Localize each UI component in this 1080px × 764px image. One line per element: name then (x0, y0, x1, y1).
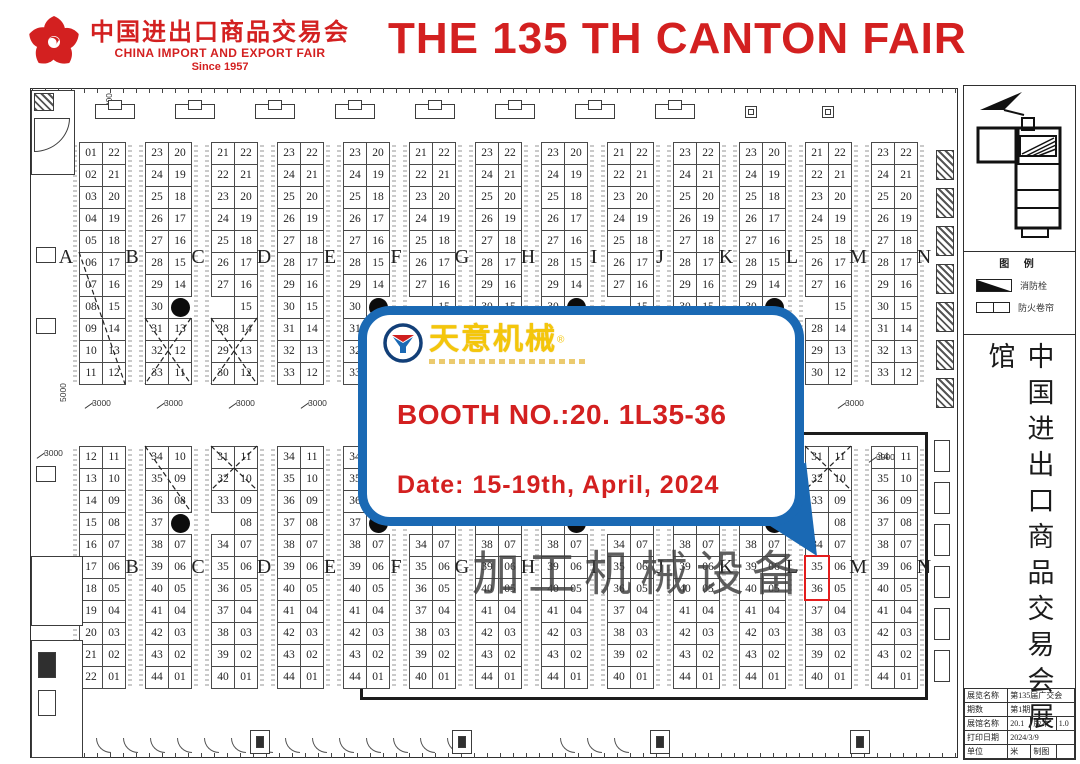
booth-cell-bottom-44: 44 (673, 666, 697, 689)
booth-cell-top-20: 20 (828, 186, 852, 209)
dimension-label: 3000 (92, 398, 111, 408)
booth-cell-bottom-40: 40 (277, 578, 301, 601)
booth-cell-bottom-04: 04 (432, 600, 456, 623)
booth-cell-top-19: 19 (366, 164, 390, 187)
booth-cell-bottom-05: 05 (102, 578, 126, 601)
booth-cell-top-16: 16 (696, 274, 720, 297)
booth-cell-top-08: 08 (79, 296, 103, 319)
booth-cell-bottom-08: 08 (828, 512, 852, 535)
pillar-dot (171, 298, 190, 317)
exhibitor-logo: 天意机械® (383, 323, 589, 368)
booth-cell-top-30: 30 (145, 296, 169, 319)
booth-cell-bottom-36: 36 (409, 578, 433, 601)
booth-cell-top-24: 24 (475, 164, 499, 187)
hall-letter-I-top: I (585, 246, 603, 268)
booth-cell-top-24: 24 (541, 164, 565, 187)
booth-cell-bottom-02: 02 (564, 644, 588, 667)
booth-cell-top-27: 27 (145, 230, 169, 253)
booth-cell-top-13: 13 (102, 340, 126, 363)
booth-cell-bottom-35: 35 (277, 468, 301, 491)
pillar-dot (171, 514, 190, 533)
booth-cell-top-32: 32 (145, 340, 169, 363)
booth-cell-top-24: 24 (277, 164, 301, 187)
booth-cell-top-32: 32 (277, 340, 301, 363)
booth-cell-top-22: 22 (894, 142, 918, 165)
booth-cell-top-26: 26 (607, 252, 631, 275)
booth-cell-top-20: 20 (234, 186, 258, 209)
booth-cell-bottom-38: 38 (211, 622, 235, 645)
info-table-cell: 版本 (1031, 717, 1056, 731)
door-swing-arc (420, 738, 435, 753)
booth-cell-top-19: 19 (630, 208, 654, 231)
booth-cell-bottom-32: 32 (805, 468, 829, 491)
booth-cell-top-12: 12 (168, 340, 192, 363)
booth-cell-bottom-44: 44 (871, 666, 895, 689)
service-room (934, 650, 950, 682)
booth-cell-bottom-39: 39 (409, 644, 433, 667)
booth-cell-bottom-08: 08 (102, 512, 126, 535)
booth-cell-top-26: 26 (211, 252, 235, 275)
fire-shutter-icon (976, 302, 1010, 313)
booth-cell-top-33: 33 (871, 362, 895, 385)
info-table-cell: 制图 (1031, 745, 1056, 759)
freight-lift (38, 652, 56, 678)
booth-cell-top-15: 15 (234, 296, 258, 319)
booth-cell-top-18: 18 (366, 186, 390, 209)
booth-cell-bottom-03: 03 (630, 622, 654, 645)
booth-cell-top-22: 22 (102, 142, 126, 165)
booth-cell-top-24: 24 (211, 208, 235, 231)
booth-cell-bottom-39: 39 (343, 556, 367, 579)
booth-cell-bottom-37: 37 (211, 600, 235, 623)
booth-cell-top-16: 16 (894, 274, 918, 297)
booth-cell-bottom-04: 04 (366, 600, 390, 623)
booth-cell-top-29: 29 (145, 274, 169, 297)
wall-pillar (458, 736, 466, 748)
booth-cell-top-21: 21 (696, 164, 720, 187)
booth-cell-bottom-01: 01 (564, 666, 588, 689)
booth-cell-top-02: 02 (79, 164, 103, 187)
hall-letter-G-bottom: G (453, 556, 471, 578)
booth-cell-top-20: 20 (564, 142, 588, 165)
dimension-label: 3000 (44, 448, 63, 458)
booth-cell-top-22: 22 (828, 142, 852, 165)
booth-cell-bottom-11: 11 (300, 446, 324, 469)
booth-cell-bottom-35: 35 (409, 556, 433, 579)
exhibitor-tagline-strip (429, 359, 589, 364)
booth-cell-top-29: 29 (805, 340, 829, 363)
booth-cell-bottom-02: 02 (828, 644, 852, 667)
booth-cell-top-14: 14 (234, 318, 258, 341)
booth-cell-bottom-44: 44 (145, 666, 169, 689)
entrance-vestibule (428, 100, 442, 110)
booth-cell-top-13: 13 (168, 318, 192, 341)
booth-cell-bottom-01: 01 (762, 666, 786, 689)
booth-cell-top-25: 25 (871, 186, 895, 209)
booth-cell-top-22: 22 (234, 142, 258, 165)
booth-cell-bottom-40: 40 (805, 666, 829, 689)
booth-cell-top-30: 30 (805, 362, 829, 385)
booth-cell-top-28: 28 (145, 252, 169, 275)
booth-cell-top-20: 20 (432, 186, 456, 209)
booth-cell-top-31: 31 (871, 318, 895, 341)
stair-block (34, 93, 54, 111)
hall-letter-D-top: D (255, 246, 273, 268)
booth-cell-top-20: 20 (762, 142, 786, 165)
booth-cell-top-23: 23 (541, 142, 565, 165)
service-room (934, 524, 950, 556)
booth-cell-bottom-37: 37 (343, 512, 367, 535)
booth-cell-top-27: 27 (607, 274, 631, 297)
booth-cell-top-29: 29 (343, 274, 367, 297)
booth-cell-top-13: 13 (894, 340, 918, 363)
entrance-vestibule (588, 100, 602, 110)
booth-cell-top-01: 01 (79, 142, 103, 165)
booth-cell-bottom-42: 42 (871, 622, 895, 645)
info-table-cell: 单位 (965, 745, 1008, 759)
booth-cell-bottom-03: 03 (366, 622, 390, 645)
booth-cell-bottom-03: 03 (168, 622, 192, 645)
booth-cell-top-24: 24 (739, 164, 763, 187)
booth-cell-top-05: 05 (79, 230, 103, 253)
booth-cell-bottom-10: 10 (828, 468, 852, 491)
door-swing-arc (123, 738, 138, 753)
booth-cell-top-25: 25 (673, 186, 697, 209)
booth-cell-bottom-09: 09 (300, 490, 324, 513)
booth-cell-bottom-07: 07 (168, 534, 192, 557)
booth-cell-bottom-09: 09 (828, 490, 852, 513)
booth-cell-bottom-08: 08 (300, 512, 324, 535)
freight-lift (38, 690, 56, 716)
booth-cell-bottom-43: 43 (475, 644, 499, 667)
service-room (936, 150, 954, 180)
booth-cell-top-22: 22 (432, 142, 456, 165)
booth-cell-top-27: 27 (871, 230, 895, 253)
booth-cell-top-12: 12 (102, 362, 126, 385)
booth-cell-top-21: 21 (828, 164, 852, 187)
booth-cell-top-19: 19 (564, 164, 588, 187)
booth-cell-top-28: 28 (805, 318, 829, 341)
booth-cell-bottom-01: 01 (234, 666, 258, 689)
stair-block (31, 556, 83, 626)
booth-cell-top-27: 27 (805, 274, 829, 297)
booth-cell-bottom-03: 03 (696, 622, 720, 645)
drawing-info-table: 展览名称第135届广交会期数第1期展馆名称20.1版本1.0打印日期2024/3… (964, 688, 1075, 759)
booth-cell-top-30: 30 (211, 362, 235, 385)
booth-cell-top-23: 23 (871, 142, 895, 165)
registered-mark: ® (557, 335, 564, 346)
booth-cell-bottom-03: 03 (300, 622, 324, 645)
booth-cell-bottom-44: 44 (541, 666, 565, 689)
booth-cell-bottom-43: 43 (541, 644, 565, 667)
booth-cell-bottom-01: 01 (168, 666, 192, 689)
minimap-section (964, 86, 1075, 251)
booth-cell-bottom-04: 04 (300, 600, 324, 623)
booth-cell-top-19: 19 (234, 208, 258, 231)
booth-cell-bottom-10: 10 (168, 446, 192, 469)
hall-letter-F-bottom: F (387, 556, 405, 578)
booth-cell-top-06: 06 (79, 252, 103, 275)
booth-cell-top-16: 16 (498, 274, 522, 297)
booth-cell-top-31: 31 (145, 318, 169, 341)
door-swing-arc (614, 738, 629, 753)
booth-cell-top-19: 19 (498, 208, 522, 231)
booth-cell-bottom-36: 36 (277, 490, 301, 513)
door-swing-arc (150, 738, 165, 753)
booth-cell-top-28: 28 (343, 252, 367, 275)
booth-cell-top-25: 25 (343, 186, 367, 209)
booth-cell-top-25: 25 (475, 186, 499, 209)
legend-item-label: 防火卷帘 (1018, 301, 1054, 314)
booth-cell-top-31: 31 (277, 318, 301, 341)
booth-cell-top-23: 23 (277, 142, 301, 165)
booth-cell-bottom-37: 37 (409, 600, 433, 623)
booth-cell-bottom-09: 09 (894, 490, 918, 513)
booth-cell-top-30: 30 (343, 296, 367, 319)
info-table-row: 单位米制图 (965, 745, 1075, 759)
booth-cell-top-26: 26 (805, 252, 829, 275)
booth-cell-top-23: 23 (673, 142, 697, 165)
hall-letter-A-top: A (57, 246, 75, 268)
booth-cell-top-22: 22 (409, 164, 433, 187)
booth-cell-bottom-02: 02 (894, 644, 918, 667)
booth-cell-bottom-14: 14 (79, 490, 103, 513)
booth-cell-bottom-34: 34 (409, 534, 433, 557)
booth-cell-top-19: 19 (762, 164, 786, 187)
booth-cell-top-11: 11 (168, 362, 192, 385)
booth-cell-top-10: 10 (79, 340, 103, 363)
booth-cell-top-20: 20 (894, 186, 918, 209)
booth-cell-top-22: 22 (498, 142, 522, 165)
booth-cell-top-24: 24 (145, 164, 169, 187)
wall-pillar (256, 736, 264, 748)
booth-cell-bottom-42: 42 (673, 622, 697, 645)
booth-cell-bottom-16: 16 (79, 534, 103, 557)
booth-cell-top-14: 14 (564, 274, 588, 297)
booth-cell-top-26: 26 (145, 208, 169, 231)
info-table-cell: 展览名称 (965, 689, 1008, 703)
booth-cell-bottom-36: 36 (145, 490, 169, 513)
hall-letter-M-bottom: M (849, 556, 867, 578)
booth-cell-top-33: 33 (277, 362, 301, 385)
booth-cell-bottom-44: 44 (277, 666, 301, 689)
booth-cell-top-26: 26 (343, 208, 367, 231)
exhibitor-brand-name: 天意机械 (429, 323, 557, 356)
info-table-cell: 1.0 (1056, 717, 1074, 731)
hall-letter-F-top: F (387, 246, 405, 268)
booth-callout: 天意机械® BOOTH NO.:20. 1L35-36 Date: 15-19t… (358, 306, 804, 526)
booth-cell-bottom-10: 10 (102, 468, 126, 491)
booth-cell-top-14: 14 (828, 318, 852, 341)
north-arrow-icon (980, 92, 1024, 115)
booth-cell-bottom-36: 36 (871, 490, 895, 513)
booth-cell-bottom-01: 01 (828, 666, 852, 689)
booth-cell-bottom-42: 42 (541, 622, 565, 645)
booth-cell-top-25: 25 (607, 230, 631, 253)
hall-letter-B-bottom: B (123, 556, 141, 578)
booth-cell-bottom-34: 34 (145, 446, 169, 469)
booth-cell-top-21: 21 (607, 142, 631, 165)
info-table-row: 期数第1期 (965, 703, 1075, 717)
booth-cell-top-17: 17 (762, 208, 786, 231)
service-room (934, 608, 950, 640)
booth-cell-bottom-33: 33 (805, 490, 829, 513)
booth-cell-bottom-39: 39 (805, 644, 829, 667)
booth-cell-bottom-41: 41 (145, 600, 169, 623)
legend-section: 图 例 消防栓 防火卷帘 (964, 251, 1075, 334)
entrance-vestibule (108, 100, 122, 110)
booth-highlight-35-36 (804, 555, 830, 601)
hall-letter-E-bottom: E (321, 556, 339, 578)
fair-date-text: Date: 15-19th, April, 2024 (397, 471, 719, 500)
booth-cell-bottom-02: 02 (432, 644, 456, 667)
info-table-row: 展馆名称20.1版本1.0 (965, 717, 1075, 731)
booth-cell-bottom-05: 05 (432, 578, 456, 601)
booth-cell-bottom-02: 02 (168, 644, 192, 667)
door-swing-arc (366, 738, 381, 753)
booth-cell-bottom-40: 40 (409, 666, 433, 689)
wall-box (36, 318, 56, 334)
booth-cell-top-22: 22 (696, 142, 720, 165)
booth-cell-bottom-04: 04 (894, 600, 918, 623)
booth-cell-top-21: 21 (805, 142, 829, 165)
booth-cell-top-20: 20 (366, 142, 390, 165)
hall-letter-G-top: G (453, 246, 471, 268)
booth-cell-bottom-01: 01 (630, 666, 654, 689)
info-table-cell: 第135届广交会 (1008, 689, 1075, 703)
booth-cell-bottom-35: 35 (211, 556, 235, 579)
door-swing-arc (587, 738, 602, 753)
booth-cell-top-21: 21 (498, 164, 522, 187)
booth-cell-top-20: 20 (498, 186, 522, 209)
service-room (936, 340, 954, 370)
booth-cell-top-07: 07 (79, 274, 103, 297)
booth-cell-top-20: 20 (696, 186, 720, 209)
door-swing-arc (393, 738, 408, 753)
booth-cell-top-21: 21 (432, 164, 456, 187)
booth-cell-bottom-09: 09 (234, 490, 258, 513)
booth-cell-bottom-03: 03 (234, 622, 258, 645)
booth-cell-top-26: 26 (277, 208, 301, 231)
booth-cell-top-23: 23 (607, 186, 631, 209)
booth-cell-top-17: 17 (168, 208, 192, 231)
booth-cell-top-26: 26 (475, 208, 499, 231)
booth-cell-bottom-12: 12 (79, 446, 103, 469)
booth-cell-bottom-43: 43 (739, 644, 763, 667)
booth-cell-top-27: 27 (673, 230, 697, 253)
dimension-label: 5000 (58, 383, 68, 402)
booth-cell-top-28: 28 (277, 252, 301, 275)
booth-cell-top-22: 22 (805, 164, 829, 187)
booth-cell-bottom-03: 03 (828, 622, 852, 645)
service-room (934, 482, 950, 514)
booth-cell-top-22: 22 (300, 142, 324, 165)
booth-cell-top-27: 27 (277, 230, 301, 253)
booth-cell-top-15: 15 (828, 296, 852, 319)
booth-cell-top-03: 03 (79, 186, 103, 209)
booth-cell-bottom-04: 04 (102, 600, 126, 623)
booth-cell-bottom-42: 42 (739, 622, 763, 645)
hall-letter-N-top: N (915, 246, 933, 268)
booth-cell-top-26: 26 (871, 208, 895, 231)
booth-cell-top-13: 13 (300, 340, 324, 363)
booth-cell-bottom-38: 38 (409, 622, 433, 645)
fire-hydrant-icon (976, 279, 1012, 292)
booth-cell-bottom-40: 40 (343, 578, 367, 601)
booth-cell-bottom-03: 03 (432, 622, 456, 645)
booth-cell-bottom-39: 39 (607, 644, 631, 667)
booth-cell-bottom-37: 37 (277, 512, 301, 535)
booth-cell-bottom-02: 02 (234, 644, 258, 667)
hall-letter-C-top: C (189, 246, 207, 268)
booth-cell-bottom-01: 01 (894, 666, 918, 689)
booth-cell-bottom-44: 44 (739, 666, 763, 689)
booth-cell-top-15: 15 (894, 296, 918, 319)
booth-cell-bottom-04: 04 (168, 600, 192, 623)
booth-cell-top-15: 15 (300, 296, 324, 319)
booth-cell-top-24: 24 (871, 164, 895, 187)
booth-cell-top-29: 29 (871, 274, 895, 297)
wall-pillar (856, 736, 864, 748)
booth-cell-top-26: 26 (673, 208, 697, 231)
booth-cell-bottom-08: 08 (894, 512, 918, 535)
booth-cell-bottom-04: 04 (828, 600, 852, 623)
booth-cell-bottom-35: 35 (871, 468, 895, 491)
booth-cell-top-24: 24 (343, 164, 367, 187)
booth-cell-bottom-02: 02 (366, 644, 390, 667)
booth-cell-top-28: 28 (211, 318, 235, 341)
hall-letter-N-bottom: N (915, 556, 933, 578)
booth-cell-bottom-04: 04 (234, 600, 258, 623)
booth-cell-top-27: 27 (541, 230, 565, 253)
booth-cell-bottom-13: 13 (79, 468, 103, 491)
booth-cell-bottom-39: 39 (277, 556, 301, 579)
booth-cell-top-18: 18 (762, 186, 786, 209)
booth-cell-top-15: 15 (102, 296, 126, 319)
booth-cell-bottom-40: 40 (607, 666, 631, 689)
booth-cell-bottom-07: 07 (894, 534, 918, 557)
entrance-vestibule (348, 100, 362, 110)
dimension-label: 3000 (308, 398, 327, 408)
booth-cell-bottom-39: 39 (211, 644, 235, 667)
booth-cell-top-28: 28 (541, 252, 565, 275)
info-table-cell: 米 (1008, 745, 1031, 759)
booth-cell-top-28: 28 (475, 252, 499, 275)
booth-cell-bottom-05: 05 (894, 578, 918, 601)
booth-cell-bottom-05: 05 (300, 578, 324, 601)
booth-cell-top-14: 14 (168, 274, 192, 297)
booth-cell-top-22: 22 (607, 164, 631, 187)
booth-cell-bottom-02: 02 (300, 644, 324, 667)
booth-cell-top-20: 20 (630, 186, 654, 209)
booth-cell-top-19: 19 (432, 208, 456, 231)
booth-cell-bottom-43: 43 (277, 644, 301, 667)
door-swing-arc (204, 738, 219, 753)
door-swing-arc (285, 738, 300, 753)
booth-cell-bottom-11: 11 (828, 446, 852, 469)
booth-cell-top-09: 09 (79, 318, 103, 341)
booth-cell-top-28: 28 (871, 252, 895, 275)
booth-cell-bottom-42: 42 (343, 622, 367, 645)
booth-cell-bottom-05: 05 (168, 578, 192, 601)
booth-cell-bottom-03: 03 (564, 622, 588, 645)
booth-cell-bottom-05: 05 (366, 578, 390, 601)
booth-cell-bottom-34: 34 (805, 534, 829, 557)
booth-cell-top-27: 27 (211, 274, 235, 297)
booth-cell-bottom-05: 05 (828, 578, 852, 601)
booth-cell-top-16: 16 (234, 274, 258, 297)
door-swing-arc (560, 738, 575, 753)
